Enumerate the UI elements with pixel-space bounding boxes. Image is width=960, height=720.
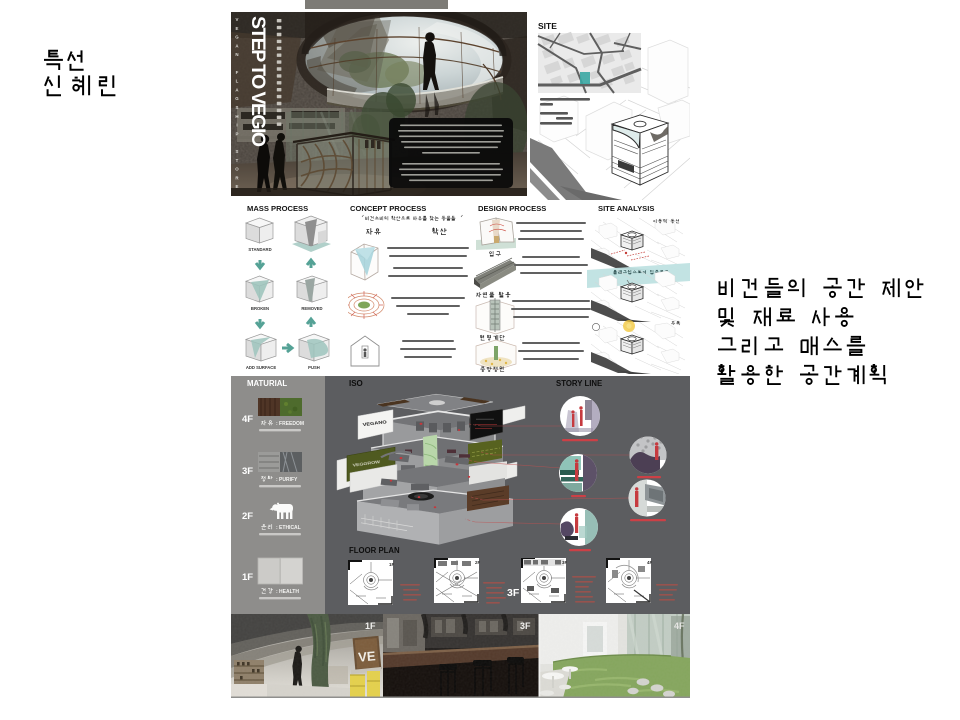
svg-text:G: G bbox=[235, 35, 239, 40]
svg-text:I: I bbox=[236, 123, 237, 128]
svg-text:: ETHICAL: : ETHICAL bbox=[276, 525, 301, 531]
svg-text:3F: 3F bbox=[562, 560, 567, 565]
svg-text:1F: 1F bbox=[389, 562, 394, 567]
svg-text:4F: 4F bbox=[242, 414, 253, 425]
svg-text:2F: 2F bbox=[475, 560, 480, 565]
svg-text:O: O bbox=[235, 167, 239, 172]
svg-text:3F: 3F bbox=[242, 466, 253, 477]
svg-text:STEP TO VEGIO: STEP TO VEGIO bbox=[247, 16, 269, 147]
svg-text:STANDARD: STANDARD bbox=[248, 247, 271, 252]
svg-text:: HEALTH: : HEALTH bbox=[276, 589, 299, 595]
svg-text:: FREEDOM: : FREEDOM bbox=[276, 421, 304, 427]
svg-text:E: E bbox=[236, 184, 239, 189]
svg-text:PUSH: PUSH bbox=[308, 365, 320, 370]
svg-text:G: G bbox=[235, 96, 239, 101]
svg-text:3F: 3F bbox=[520, 621, 531, 631]
svg-text:FLOOR PLAN: FLOOR PLAN bbox=[349, 546, 400, 555]
svg-text:4F: 4F bbox=[674, 621, 685, 631]
svg-text:F: F bbox=[236, 70, 239, 75]
svg-text:SITE ANALYSIS: SITE ANALYSIS bbox=[598, 204, 654, 213]
svg-text:STORY LINE: STORY LINE bbox=[556, 379, 602, 388]
svg-text:ISO: ISO bbox=[349, 379, 363, 388]
svg-text:H: H bbox=[235, 114, 238, 119]
svg-text:ADD SURFACE: ADD SURFACE bbox=[246, 365, 276, 370]
svg-text:1F: 1F bbox=[365, 621, 376, 631]
svg-text:T: T bbox=[236, 158, 239, 163]
svg-text:P: P bbox=[236, 131, 239, 136]
svg-text:N: N bbox=[235, 52, 238, 57]
svg-text:4F: 4F bbox=[647, 560, 652, 565]
svg-text:L: L bbox=[236, 79, 239, 84]
svg-text:S: S bbox=[236, 105, 239, 110]
svg-text:BROKEN: BROKEN bbox=[251, 306, 269, 311]
svg-text:SITE: SITE bbox=[538, 21, 557, 31]
svg-text:DESIGN PROCESS: DESIGN PROCESS bbox=[478, 204, 546, 213]
svg-text:CONCEPT PROCESS: CONCEPT PROCESS bbox=[350, 204, 426, 213]
svg-text:2F: 2F bbox=[242, 511, 253, 522]
svg-text:3F: 3F bbox=[507, 587, 520, 599]
svg-text:MATURIAL: MATURIAL bbox=[247, 379, 287, 388]
svg-text:S: S bbox=[236, 149, 239, 154]
svg-text:1F: 1F bbox=[242, 572, 253, 583]
svg-text:: PURIFY: : PURIFY bbox=[276, 477, 298, 483]
svg-text:REMOVED: REMOVED bbox=[301, 306, 322, 311]
svg-text:E: E bbox=[236, 26, 239, 31]
svg-text:V: V bbox=[236, 17, 239, 22]
svg-text:MASS PROCESS: MASS PROCESS bbox=[247, 204, 308, 213]
